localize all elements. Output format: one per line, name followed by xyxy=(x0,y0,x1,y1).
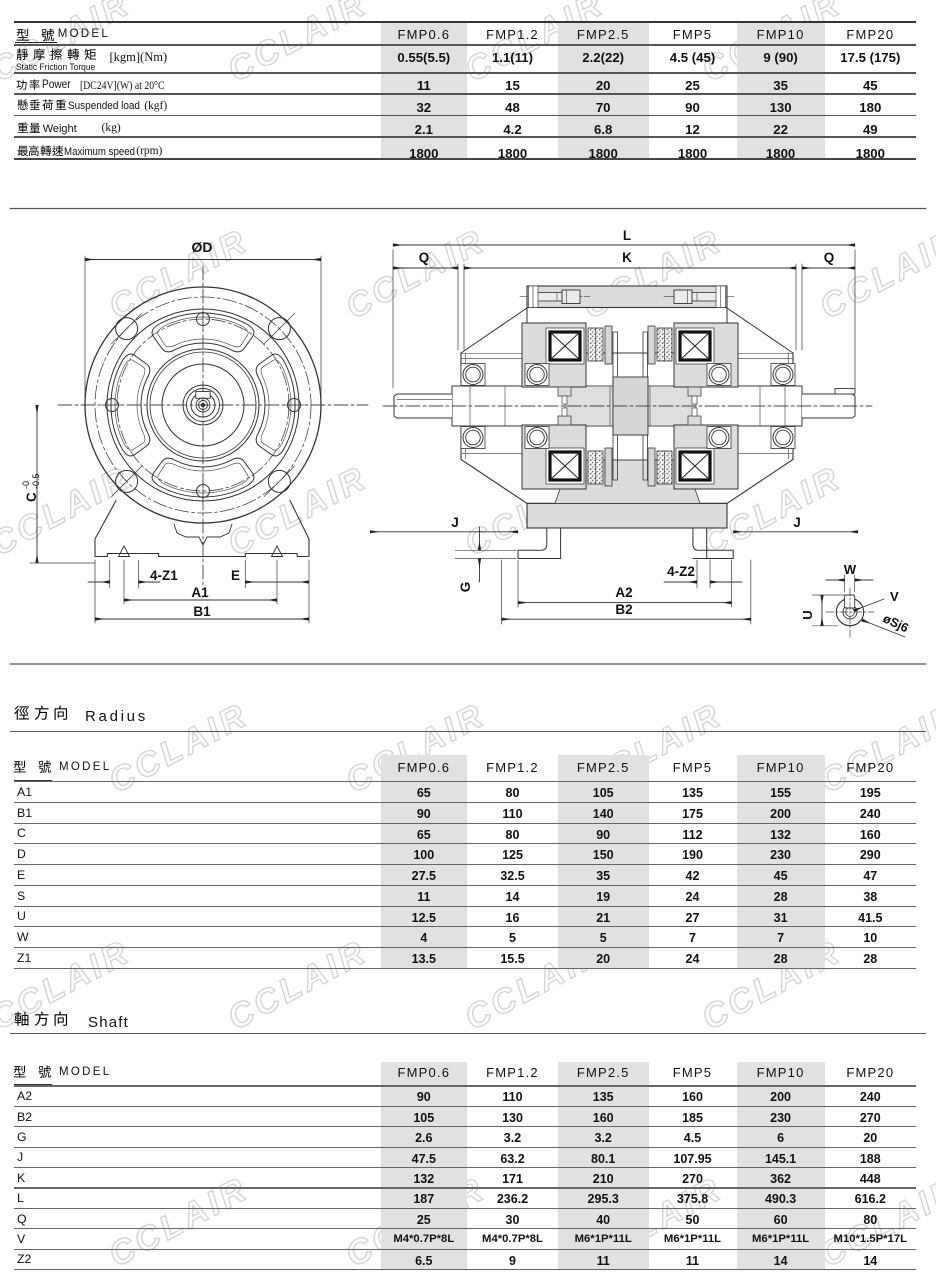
svg-text:U: U xyxy=(800,610,815,619)
svg-text:L: L xyxy=(623,228,631,243)
svg-text:Q: Q xyxy=(824,250,835,265)
svg-text:A1: A1 xyxy=(191,585,209,600)
svg-text:Q: Q xyxy=(419,250,430,265)
svg-text:C: C xyxy=(24,492,39,502)
svg-text:G: G xyxy=(458,582,473,593)
svg-text:J: J xyxy=(793,515,801,530)
svg-text:E: E xyxy=(231,568,240,583)
svg-text:B2: B2 xyxy=(615,602,632,617)
svg-text:A2: A2 xyxy=(615,585,632,600)
svg-text:W: W xyxy=(844,562,857,577)
svg-text:B1: B1 xyxy=(193,604,211,619)
svg-text:4-Z1: 4-Z1 xyxy=(150,568,178,583)
svg-text:4-Z2: 4-Z2 xyxy=(667,564,695,579)
svg-text:ØD: ØD xyxy=(192,239,213,255)
svg-text:K: K xyxy=(622,250,632,265)
svg-text:øSj6: øSj6 xyxy=(881,611,911,635)
svg-text:V: V xyxy=(890,589,899,604)
svg-text:-0.5: -0.5 xyxy=(31,473,41,489)
svg-text:-0: -0 xyxy=(21,481,31,489)
svg-text:J: J xyxy=(451,515,459,530)
